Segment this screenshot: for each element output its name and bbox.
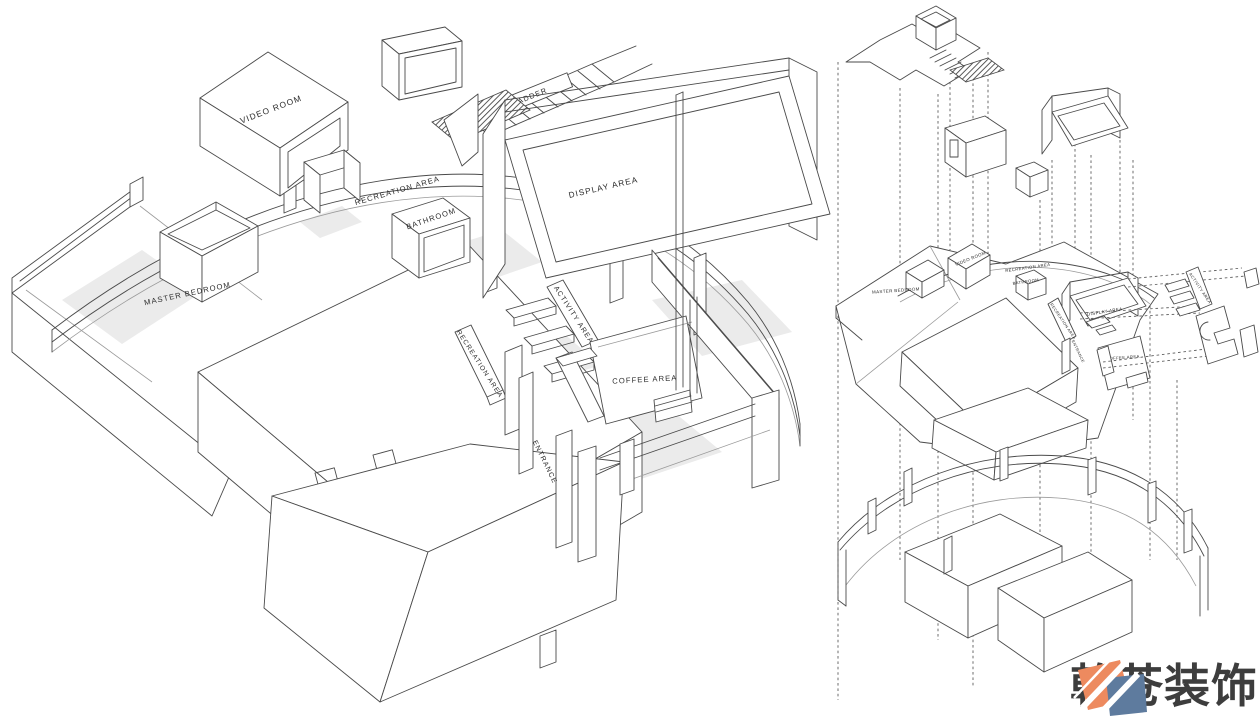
floating-display-frame [1042, 88, 1128, 154]
exploded-c-piece [1196, 268, 1259, 364]
label-recreation-area: RECREATION AREA [354, 174, 441, 207]
base-plate [838, 447, 1208, 672]
video-room-box: VIDEO ROOM [200, 52, 348, 196]
hatched-ramp [432, 90, 530, 142]
floating-volumes [945, 88, 1128, 197]
left-diagram: VIDEO ROOM [12, 27, 830, 702]
base-inner-volumes [905, 514, 1132, 672]
door [540, 630, 556, 668]
floating-cube [1016, 162, 1048, 197]
logo: 乾苍装饰 [1070, 654, 1258, 718]
roof-plate [846, 6, 1004, 86]
diagram-canvas: VIDEO ROOM [0, 0, 1260, 718]
floating-house-box [945, 116, 1006, 177]
logo-mark-icon [1070, 654, 1150, 716]
u-shaped-cabinet [304, 150, 360, 213]
right-diagram: MASTER BEDROOM VIDEO ROOM BATHROOM RECRE… [836, 6, 1259, 700]
page: VIDEO ROOM [0, 0, 1260, 718]
frame-box [382, 27, 462, 100]
bathroom-box: BATHROOM [392, 198, 470, 278]
